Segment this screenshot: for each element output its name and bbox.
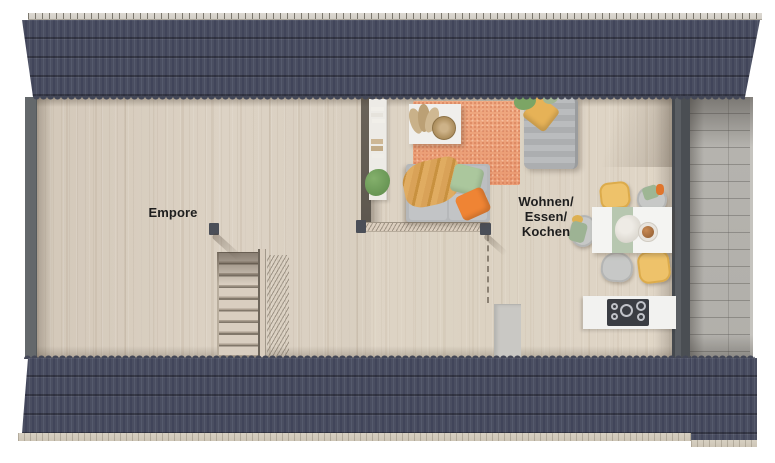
- shelf-book: [371, 113, 383, 117]
- cooktop-burner: [611, 313, 618, 320]
- fruit-orange: [656, 184, 664, 195]
- roof-slope-top: [22, 20, 760, 97]
- cooktop-burner: [620, 304, 633, 317]
- room-label-living-line3: Kochen: [504, 224, 588, 239]
- roof-slope-bottom-right: [691, 358, 757, 440]
- cooktop-burner: [636, 301, 646, 311]
- roof-top-scallop-edge: [33, 96, 745, 101]
- dining-chair-yellow: [636, 249, 672, 285]
- room-label-empore-text: Empore: [148, 205, 197, 220]
- food-plate-contents: [642, 226, 654, 238]
- shelf-book: [372, 154, 384, 158]
- stair-railing: [258, 249, 266, 357]
- roof-eave-strip-right: [691, 440, 757, 447]
- gable-wall-left: [25, 97, 37, 358]
- room-label-living-line1: Wohnen/: [504, 194, 588, 209]
- shelf-book: [372, 119, 385, 123]
- shelf-book: [371, 139, 383, 144]
- room-label-living: Wohnen/ Essen/ Kochen: [504, 194, 588, 239]
- chimney-block: [494, 304, 521, 358]
- shadow-living-corner: [580, 97, 672, 167]
- roof-slope-bottom: [22, 358, 691, 433]
- stair-void-hatch: [267, 255, 289, 357]
- woven-tray: [432, 116, 456, 140]
- roof-ridge-cap: [28, 13, 762, 20]
- cooktop-burner: [611, 303, 618, 310]
- railing-post-left: [356, 220, 366, 233]
- void-dashed-line: [487, 235, 489, 303]
- shadow-left-wall: [37, 97, 53, 358]
- roof-eave-strip: [18, 433, 691, 441]
- cooktop-burner: [637, 313, 645, 321]
- dining-chair-yellow: [599, 181, 632, 211]
- shelf-book: [371, 107, 384, 111]
- gallery-railing: [357, 222, 490, 232]
- gallery-railing-hatch: [357, 223, 490, 231]
- shelf-book: [371, 146, 383, 151]
- room-label-living-line2: Essen/: [504, 209, 588, 224]
- shadow-balcony-left: [690, 97, 704, 358]
- floorplan-attic: Empore Wohnen/ Essen/ Kochen: [0, 0, 775, 463]
- room-label-empore: Empore: [128, 205, 218, 220]
